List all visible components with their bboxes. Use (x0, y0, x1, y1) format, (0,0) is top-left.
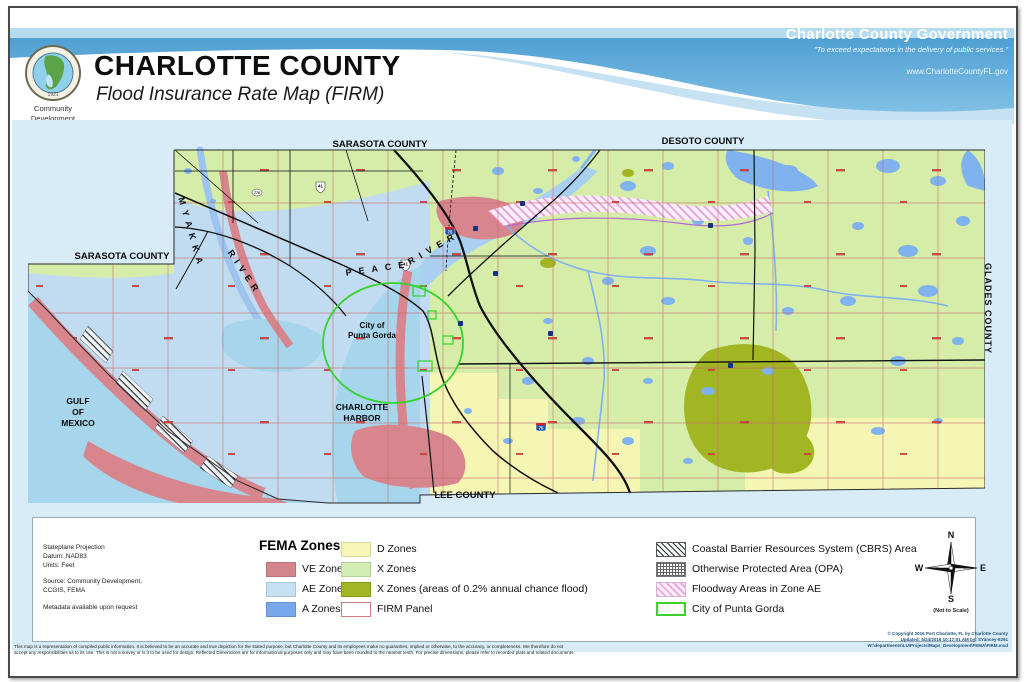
ae-swatch (266, 582, 296, 597)
map-info-block: Stateplane Projection Datum: NAD83 Units… (43, 544, 142, 621)
x02-swatch (341, 582, 371, 597)
not-to-scale-note: (Not to Scale) (891, 608, 1011, 614)
gov-title: Charlotte County Government (786, 26, 1008, 43)
svg-text:W: W (915, 563, 924, 573)
compass-rose-icon: N S W E (891, 526, 1011, 606)
d-swatch (341, 542, 371, 557)
compass-rose: N S W E (Not to Scale) (891, 526, 1011, 626)
label-sarasota-county-west: SARASOTA COUNTY (72, 251, 172, 262)
projection-text: Stateplane Projection (43, 544, 142, 553)
label-gulf-of-mexico: GULF OF MEXICO (48, 396, 108, 429)
units-text: Units: Feet (43, 562, 142, 571)
svg-text:N: N (948, 530, 955, 540)
label-desoto-county: DESOTO COUNTY (658, 136, 748, 147)
svg-text:776: 776 (254, 191, 260, 195)
label-city-of-punta-gorda: City of Punta Gorda (338, 321, 406, 342)
gov-website-link[interactable]: www.CharlotteCountyFL.gov (786, 67, 1008, 76)
filepath-line: W:\departments\LU\Projects\Maps_Developm… (868, 643, 1008, 649)
page-subtitle: Flood Insurance Rate Map (FIRM) (96, 84, 384, 106)
firm-map-page: 1921 CommunityDevelopment CHARLOTTE COUN… (0, 0, 1024, 682)
source-text2: CCGIS, FEMA (43, 587, 142, 596)
datum-text: Datum: NAD83 (43, 553, 142, 562)
cbrs-swatch (656, 542, 686, 557)
source-text: Source: Community Development, (43, 578, 142, 587)
sr776-shield-icon: 776 (252, 189, 262, 196)
i75-shield-icon: 75 (536, 423, 546, 431)
svg-text:S: S (948, 594, 954, 604)
page-title: CHARLOTTE COUNTY (94, 50, 401, 82)
map-canvas: 41 41 75 75 776 (28, 131, 985, 509)
label-glades-county: GLADES COUNTY (983, 263, 993, 354)
label-sarasota-county-top: SARASOTA COUNTY (330, 139, 430, 150)
svg-text:41: 41 (318, 184, 324, 189)
legend-box: Stateplane Projection Datum: NAD83 Units… (32, 517, 976, 642)
legend-heading: FEMA Zones (259, 538, 340, 553)
seal-year: 1921 (47, 92, 58, 98)
government-branding: Charlotte County Government "To exceed e… (786, 26, 1008, 76)
svg-text:E: E (980, 563, 986, 573)
city-boundary-swatch (656, 602, 686, 616)
firm-panel-swatch (341, 602, 371, 617)
copyright-block: © Copyright 2016 Port Charlotte, FL by C… (868, 631, 1008, 649)
label-lee-county: LEE COUNTY (420, 490, 510, 501)
gov-tagline: "To exceed expectations in the delivery … (786, 45, 1008, 54)
county-seal-logo: 1921 (24, 44, 82, 102)
ve-swatch (266, 562, 296, 577)
opa-swatch (656, 562, 686, 577)
disclaimer-text: This map is a representation of compiled… (14, 644, 854, 657)
a-swatch (266, 602, 296, 617)
label-charlotte-harbor: CHARLOTTE HARBOR (322, 402, 402, 424)
metadata-text: Metadata available upon request (43, 604, 142, 613)
svg-text:75: 75 (539, 426, 544, 431)
x-swatch (341, 562, 371, 577)
floodway-swatch (656, 582, 686, 597)
